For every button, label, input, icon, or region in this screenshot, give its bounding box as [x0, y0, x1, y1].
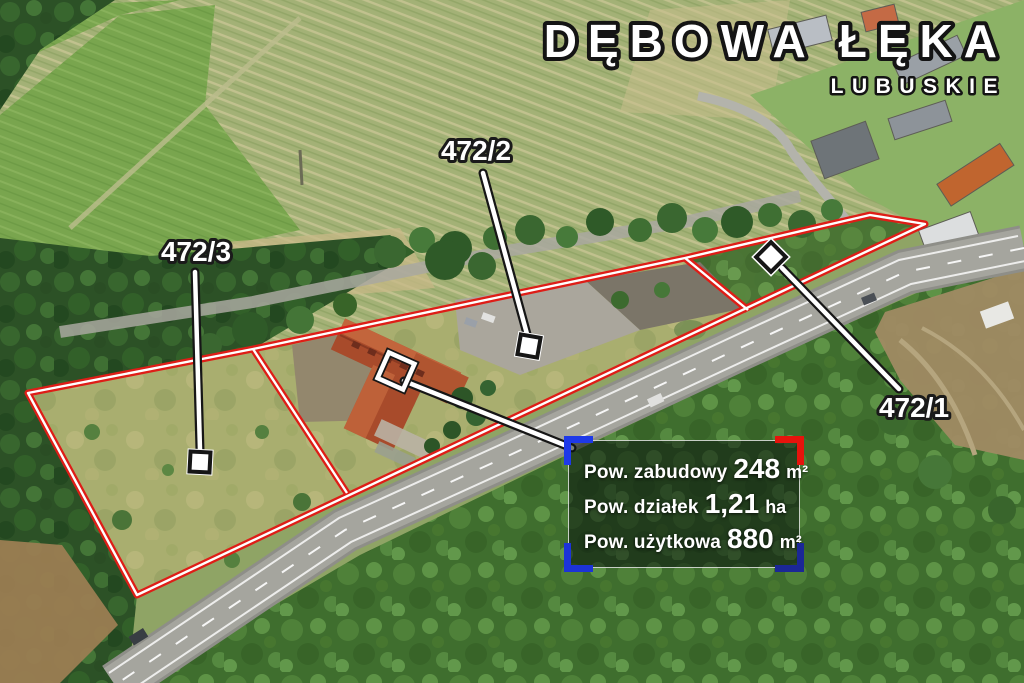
bracket-top-left	[564, 436, 593, 465]
info-label: Pow. użytkowa	[584, 532, 721, 554]
info-unit: ha	[765, 497, 786, 518]
bracket-top-right	[775, 436, 804, 465]
info-label: Pow. działek	[584, 497, 699, 519]
tree	[988, 496, 1016, 524]
listing-photo: 472/3 472/2 472/1 DĘBOWA ŁĘKA LUBUSKIE P…	[0, 0, 1024, 683]
info-value: 1,21	[705, 488, 760, 520]
info-row-usable-area: Pow. użytkowa 880 m²	[584, 523, 793, 558]
region-subtitle: LUBUSKIE	[831, 75, 1006, 98]
power-pole	[300, 150, 302, 185]
info-row-plot-area: Pow. działek 1,21 ha	[584, 488, 793, 523]
info-value: 248	[733, 453, 780, 485]
tree	[918, 455, 952, 489]
plot-label-472-1: 472/1	[879, 392, 949, 423]
plot-label-472-2: 472/2	[441, 135, 511, 166]
info-label: Pow. zabudowy	[584, 462, 727, 484]
marker-472-2	[514, 331, 544, 361]
aerial-photo: 472/3 472/2 472/1 DĘBOWA ŁĘKA LUBUSKIE	[0, 0, 1024, 683]
bracket-bottom-right	[775, 543, 804, 572]
location-title: DĘBOWA ŁĘKA	[544, 15, 1008, 67]
area-info-box: Pow. zabudowy 248 m² Pow. działek 1,21 h…	[568, 440, 800, 568]
info-unit: m²	[786, 462, 808, 483]
info-row-built-area: Pow. zabudowy 248 m²	[584, 453, 793, 488]
plot-label-472-3: 472/3	[161, 236, 231, 267]
marker-472-3	[186, 448, 213, 475]
bracket-bottom-left	[564, 543, 593, 572]
info-value: 880	[727, 523, 774, 555]
